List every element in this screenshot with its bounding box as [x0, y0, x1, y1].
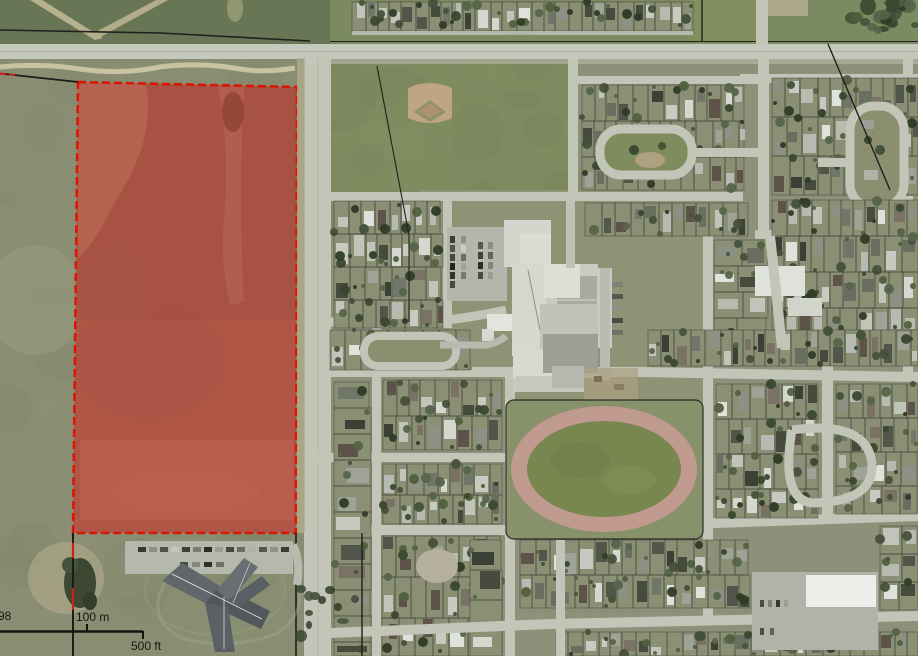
svg-text:100 m: 100 m	[76, 610, 109, 624]
svg-text:500 ft: 500 ft	[131, 639, 162, 653]
svg-text:98: 98	[0, 609, 12, 623]
